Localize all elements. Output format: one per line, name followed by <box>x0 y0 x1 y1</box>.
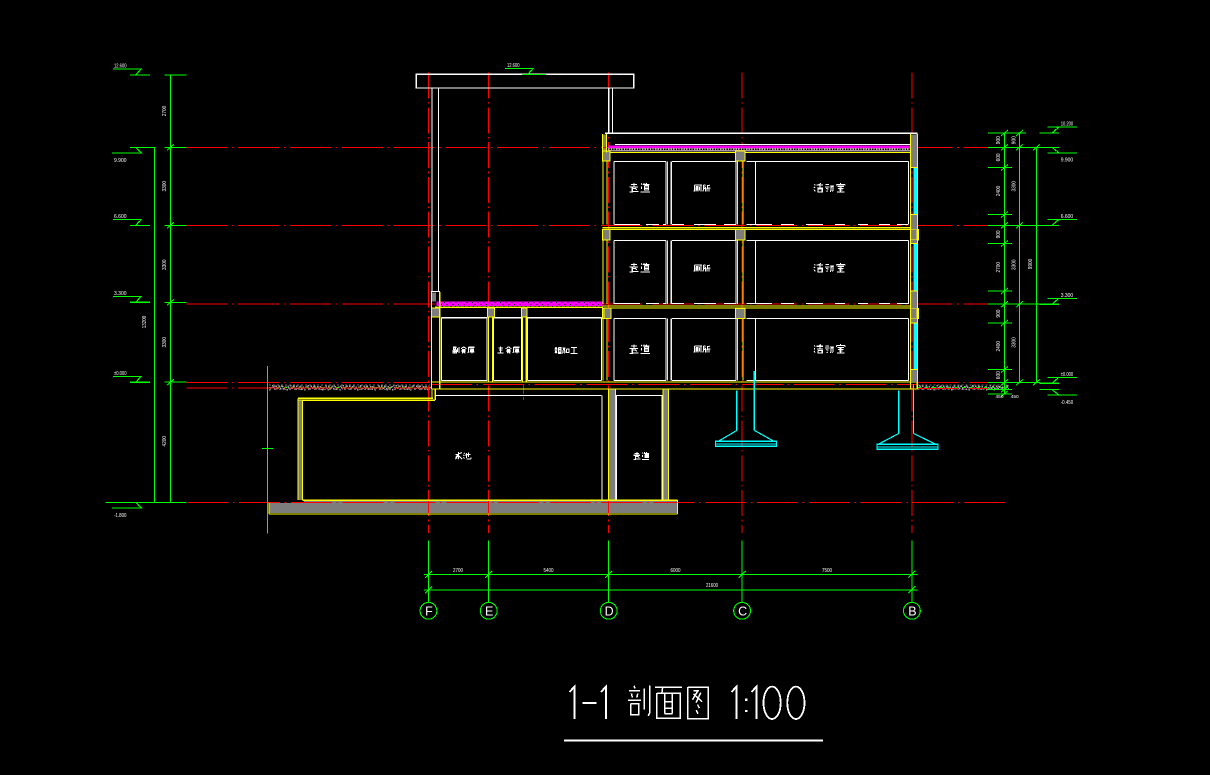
svg-text:-1.800: -1.800 <box>114 513 127 519</box>
svg-text:9.900: 9.900 <box>1061 158 1074 164</box>
svg-text:12.600: 12.600 <box>114 63 127 69</box>
svg-text:D: D <box>605 604 614 618</box>
svg-text:3300: 3300 <box>162 337 168 348</box>
svg-text:±0.000: ±0.000 <box>1061 372 1074 378</box>
svg-text:±0.000: ±0.000 <box>114 371 127 377</box>
svg-text:3300: 3300 <box>162 259 168 270</box>
svg-text:C: C <box>738 604 747 618</box>
svg-text:13200: 13200 <box>142 316 148 329</box>
svg-text:3.300: 3.300 <box>114 291 127 297</box>
svg-text:2400: 2400 <box>996 186 1002 197</box>
svg-text:5400: 5400 <box>544 568 554 574</box>
svg-text:900: 900 <box>996 136 1002 144</box>
svg-text:900: 900 <box>996 309 1002 317</box>
svg-text:10.200: 10.200 <box>1061 122 1074 128</box>
svg-text:2700: 2700 <box>996 262 1002 273</box>
svg-text:6.600: 6.600 <box>114 214 127 220</box>
svg-text:450: 450 <box>1011 394 1019 400</box>
svg-text:6000: 6000 <box>671 568 681 574</box>
svg-text:2700: 2700 <box>162 106 168 117</box>
svg-text:3300: 3300 <box>1012 181 1018 192</box>
svg-text:21600: 21600 <box>706 583 718 589</box>
svg-text:-0.450: -0.450 <box>1061 400 1074 406</box>
svg-text:7500: 7500 <box>822 568 832 574</box>
svg-text:9900: 9900 <box>1028 259 1034 270</box>
svg-text:900: 900 <box>996 230 1002 238</box>
svg-text:9.900: 9.900 <box>114 158 127 164</box>
svg-text:600: 600 <box>996 153 1002 161</box>
svg-text:6.600: 6.600 <box>1061 214 1074 220</box>
svg-text:E: E <box>485 604 493 618</box>
svg-text:3.300: 3.300 <box>1061 293 1074 299</box>
svg-text:12.600: 12.600 <box>507 63 520 69</box>
svg-text:4200: 4200 <box>162 436 168 447</box>
svg-text:2700: 2700 <box>453 568 463 574</box>
svg-text:3300: 3300 <box>162 181 168 192</box>
svg-text:450: 450 <box>996 394 1004 400</box>
svg-text:900: 900 <box>1012 136 1018 144</box>
svg-text:2400: 2400 <box>996 341 1002 352</box>
svg-text:600: 600 <box>996 371 1002 379</box>
svg-text:F: F <box>425 604 433 618</box>
svg-text:3300: 3300 <box>1012 337 1018 348</box>
svg-text:B: B <box>908 604 916 618</box>
svg-text:3300: 3300 <box>1012 259 1018 270</box>
